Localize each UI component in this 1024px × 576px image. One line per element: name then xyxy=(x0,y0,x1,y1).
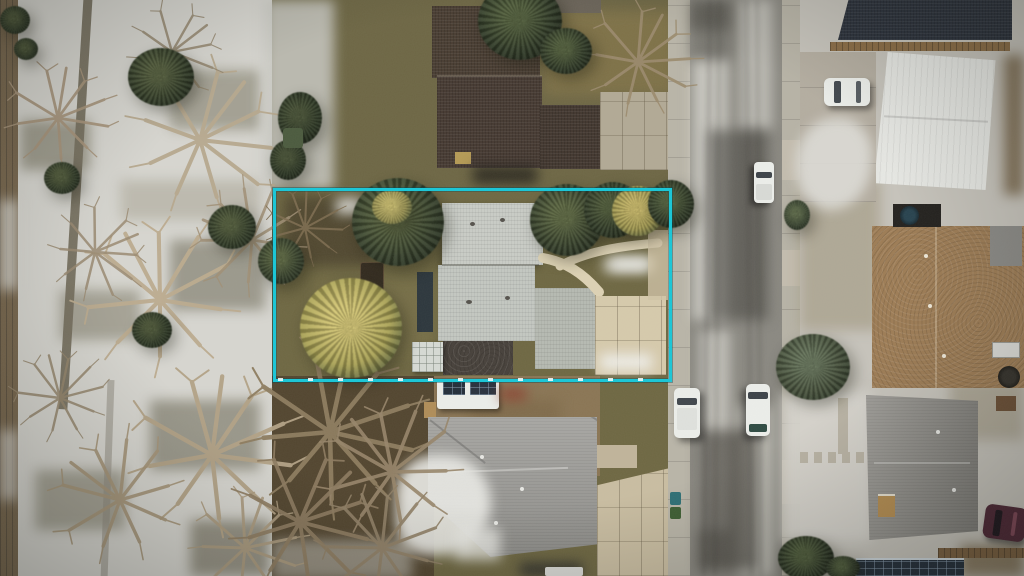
aerial-photo xyxy=(0,0,1024,576)
film-grain xyxy=(0,0,1024,576)
